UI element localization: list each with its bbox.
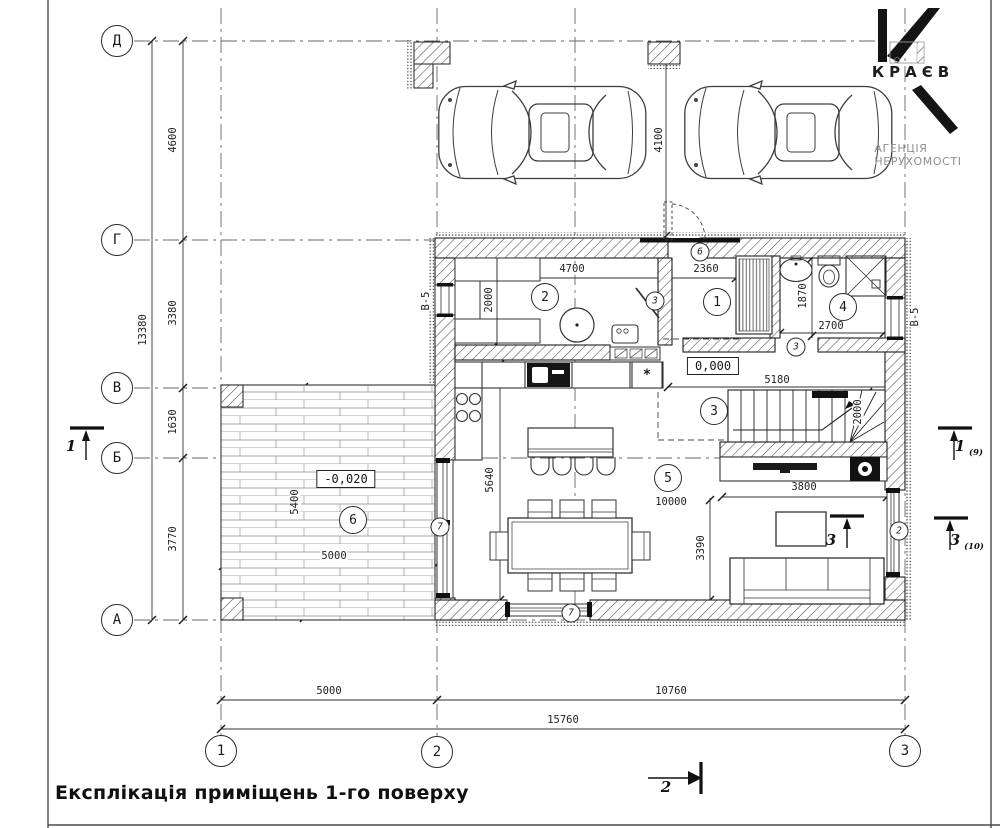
level-terrace: -0,020 [316,470,375,488]
room-6-terrace: 6 [339,506,367,534]
dining-set [490,500,650,591]
section-3-sheet-ref: (10) [964,542,984,552]
dim-terrace-width: 5000 [320,551,347,562]
section-3-mid-label: 3 [826,531,836,549]
dim-left-1630: 1630 [168,408,179,435]
sheet-title: Експлікація приміщень 1-го поверху [55,782,469,804]
ref-hall-door: 3 [787,338,806,357]
entrance-lintel [640,238,740,243]
dim-terrace-depth: 5400 [290,488,301,515]
logo-brand: КРАЄВ [872,63,954,81]
section-1-sheet-ref: (9) [969,448,983,458]
window-type-left: В-5 [421,291,432,312]
dim-sofa-zone: 3390 [696,534,707,561]
section-1-right-label: 1 [955,437,965,455]
section-1-left-label: 1 [66,437,76,455]
dim-kitchen-depth: 2000 [484,286,495,313]
bathroom-fixtures [736,256,886,334]
terrace-deck [221,385,435,620]
grid-col-1: 1 [205,735,237,767]
car-1 [439,81,646,184]
hob-symbol: * [642,368,652,382]
floor-plan-sheet: Експлікація приміщень 1-го поверху КРАЄВ… [0,0,1000,828]
dim-living-length: 10000 [654,497,688,508]
room-3-stairs: 3 [700,397,728,425]
ref-entrance-door: 6 [691,243,710,262]
cars [439,81,892,184]
grid-row-d: Д [101,25,133,57]
dim-bottom-10760: 10760 [654,686,688,697]
grid-row-g: Г [101,224,133,256]
room-1-hall: 1 [703,288,731,316]
dim-left-3770: 3770 [168,525,179,552]
dim-parking-depth: 4100 [654,126,665,153]
dim-stairs-width: 2000 [853,398,864,425]
dim-hall-width: 2360 [692,264,719,275]
window-type-right: В-5 [910,307,921,328]
grid-row-v: В [101,372,133,404]
logo-tagline: АГЕНЦІЯ НЕРУХОМОСТІ [874,142,961,168]
ref-east-window: 2 [890,522,909,541]
dim-left-3380: 3380 [168,299,179,326]
grid-col-2: 2 [421,736,453,768]
room-4-bathroom: 4 [829,293,857,321]
grid-row-a: А [101,604,133,636]
section-3-right-label: 3 [950,531,960,549]
ref-south-window: 7 [562,604,581,623]
dim-bath-width: 2700 [817,321,844,332]
ref-terrace-door: 7 [431,518,450,537]
level-ground: 0,000 [687,357,739,375]
grid-row-b: Б [101,442,133,474]
dim-living-depth: 5640 [485,466,496,493]
section-2-bottom-label: 2 [661,778,671,796]
dim-stairs-run: 5180 [763,375,790,386]
dim-bath-depth: 1870 [798,282,809,309]
dim-bottom-5000: 5000 [315,686,342,697]
living-furniture [720,457,887,604]
room-5-living: 5 [654,464,682,492]
dim-bottom-total: 15760 [546,715,580,726]
dim-tv-wall: 3800 [790,482,817,493]
plan-linework [0,0,1000,828]
room-2-kitchen: 2 [531,283,559,311]
grid-col-3: 3 [889,735,921,767]
car-2 [685,81,892,184]
dim-left-4600: 4600 [168,126,179,153]
dim-kitchen-width: 4700 [558,264,585,275]
dim-left-total: 13380 [138,313,149,347]
ref-kitchen-door: 3 [646,292,665,311]
fence-posts [414,42,680,88]
